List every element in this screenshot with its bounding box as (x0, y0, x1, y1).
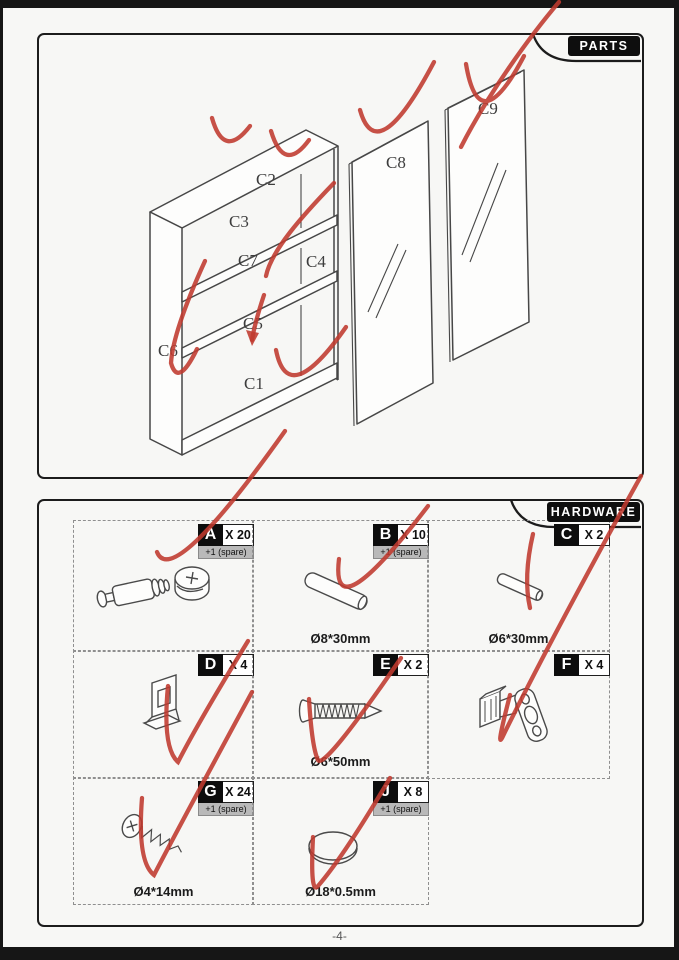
manual-page: C2 C3 C7 C4 C5 C6 C1 C8 C9 PARTS HARDWAR… (0, 0, 679, 960)
hardware-label-f: F X 4 (554, 654, 610, 676)
hardware-tab: HARDWARE (547, 502, 640, 522)
hardware-cell-f: F X 4 (427, 650, 610, 779)
hardware-count-badge: X 10 (398, 524, 429, 546)
hardware-size-label: Ø6*30mm (428, 631, 609, 646)
hardware-size-label: Ø4*14mm (74, 884, 253, 899)
part-label-c1: C1 (244, 374, 264, 394)
hardware-letter-badge: F (554, 654, 579, 676)
hardware-count-badge: X 20 (223, 524, 254, 546)
part-label-c4: C4 (306, 252, 326, 272)
part-label-c8: C8 (386, 153, 406, 173)
hardware-label-j: J X 8 +1 (spare) (373, 781, 429, 816)
hardware-cell-e: E X 2 Ø6*50mm (252, 650, 429, 779)
hardware-letter-badge: G (198, 781, 223, 803)
part-label-c9: C9 (478, 99, 498, 119)
hardware-letter-badge: J (373, 781, 398, 803)
hardware-size-label: Ø8*30mm (253, 631, 428, 646)
hardware-cell-g: G X 24 +1 (spare) Ø4*14mm (73, 777, 254, 905)
hardware-cell-d: D X 4 (73, 650, 254, 779)
hardware-label-e: E X 2 (373, 654, 429, 676)
hardware-count-badge: X 2 (398, 654, 429, 676)
hardware-label-a: A X 20 +1 (spare) (198, 524, 254, 559)
hardware-spare-badge: +1 (spare) (373, 803, 429, 816)
part-label-c6: C6 (158, 341, 178, 361)
hardware-count-badge: X 4 (223, 654, 254, 676)
hardware-label-d: D X 4 (198, 654, 254, 676)
part-label-c5: C5 (243, 314, 263, 334)
hardware-cell-c: C X 2 Ø6*30mm (427, 520, 610, 652)
parts-tab-label: PARTS (580, 39, 629, 53)
parts-tab: PARTS (568, 36, 640, 56)
part-label-c2: C2 (256, 170, 276, 190)
hardware-letter-badge: B (373, 524, 398, 546)
hardware-label-c: C X 2 (554, 524, 610, 546)
cabinet-right-edge (334, 146, 338, 380)
hardware-letter-badge: D (198, 654, 223, 676)
hardware-cell-j: J X 8 +1 (spare) Ø18*0.5mm (252, 777, 429, 905)
hardware-spare-badge: +1 (spare) (198, 803, 254, 816)
hardware-cell-b: B X 10 +1 (spare) Ø8*30mm (252, 520, 429, 652)
hardware-tab-label: HARDWARE (551, 505, 637, 519)
part-label-c7: C7 (238, 251, 258, 271)
hardware-spare-badge: +1 (spare) (373, 546, 429, 559)
hardware-spare-badge: +1 (spare) (198, 546, 254, 559)
hardware-cell-a: A X 20 +1 (spare) (73, 520, 254, 652)
hardware-count-badge: X 24 (223, 781, 254, 803)
page-number: -4- (0, 929, 679, 943)
hardware-size-label: Ø6*50mm (253, 754, 428, 769)
hardware-letter-badge: E (373, 654, 398, 676)
hardware-label-g: G X 24 +1 (spare) (198, 781, 254, 816)
hardware-label-b: B X 10 +1 (spare) (373, 524, 429, 559)
cabinet-left-panel (150, 212, 182, 455)
hardware-count-badge: X 8 (398, 781, 429, 803)
hardware-letter-badge: A (198, 524, 223, 546)
part-label-c3: C3 (229, 212, 249, 232)
hardware-count-badge: X 2 (579, 524, 610, 546)
hardware-count-badge: X 4 (579, 654, 610, 676)
hardware-size-label: Ø18*0.5mm (253, 884, 428, 899)
hardware-letter-badge: C (554, 524, 579, 546)
